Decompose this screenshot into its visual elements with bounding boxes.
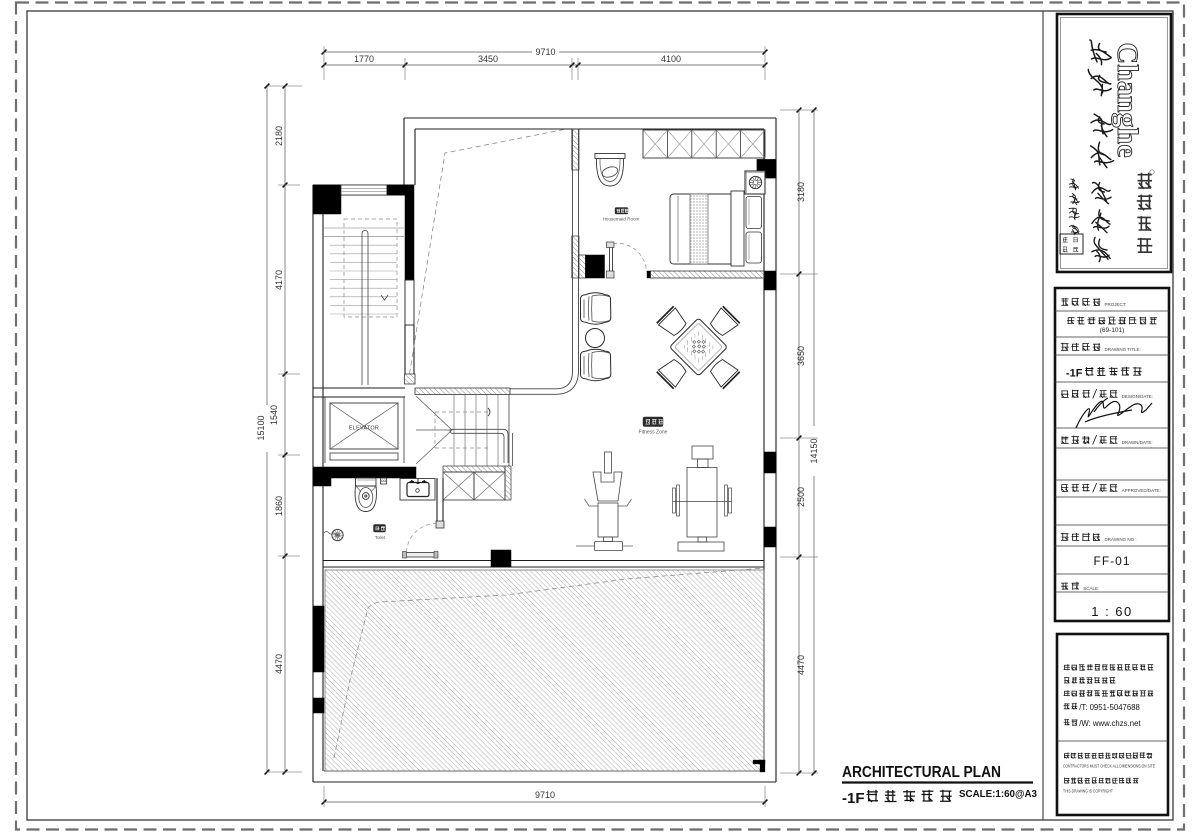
svg-text:/W: www.chzs.net: /W: www.chzs.net xyxy=(1079,719,1141,728)
svg-text:Housemaid Room: Housemaid Room xyxy=(603,217,640,222)
svg-text:PROJECT:: PROJECT: xyxy=(1105,302,1127,307)
svg-text:4470: 4470 xyxy=(274,654,284,674)
svg-text:1540: 1540 xyxy=(269,405,279,425)
svg-text:1860: 1860 xyxy=(274,496,284,516)
svg-text:ARCHITECTURAL PLAN: ARCHITECTURAL PLAN xyxy=(842,764,1001,781)
svg-text:9710: 9710 xyxy=(535,790,555,800)
svg-text:DESIGN/DATE:: DESIGN/DATE: xyxy=(1122,394,1153,399)
svg-text:14150: 14150 xyxy=(809,438,819,463)
svg-text:ELEVATOR: ELEVATOR xyxy=(349,426,379,432)
svg-text:Toilet: Toilet xyxy=(375,535,386,540)
svg-text:1770: 1770 xyxy=(354,54,374,64)
svg-text:/T: 0951-5047688: /T: 0951-5047688 xyxy=(1079,703,1140,712)
svg-text:1 : 60: 1 : 60 xyxy=(1091,604,1133,619)
svg-text:THIS DRAWING IS COPYRIGHT: THIS DRAWING IS COPYRIGHT xyxy=(1063,789,1113,794)
svg-text:-1F: -1F xyxy=(1066,368,1083,380)
svg-text:Changhe: Changhe xyxy=(1111,42,1144,157)
svg-text:4170: 4170 xyxy=(274,270,284,290)
svg-text:DRAWING TITLE:: DRAWING TITLE: xyxy=(1105,347,1141,352)
svg-text:3180: 3180 xyxy=(796,182,806,202)
svg-text:FF-01: FF-01 xyxy=(1093,554,1130,568)
svg-text:APPROVED/DATE:: APPROVED/DATE: xyxy=(1122,488,1161,493)
svg-text:4100: 4100 xyxy=(661,54,681,64)
svg-text:SCALE:1:60@A3: SCALE:1:60@A3 xyxy=(959,788,1037,800)
svg-text:DRAWING NO :: DRAWING NO : xyxy=(1105,537,1137,542)
svg-text:(69-101): (69-101) xyxy=(1100,327,1125,334)
svg-text:DRAWN/DATE:: DRAWN/DATE: xyxy=(1122,440,1153,445)
svg-text:2180: 2180 xyxy=(274,126,284,146)
svg-text:15100: 15100 xyxy=(256,415,266,440)
svg-text:SCALE:: SCALE: xyxy=(1083,586,1099,591)
svg-text:3650: 3650 xyxy=(796,346,806,366)
svg-text:9710: 9710 xyxy=(535,47,555,57)
svg-text:2500: 2500 xyxy=(796,487,806,507)
svg-text:CONTRACTORS MUST CHECK ALL DIM: CONTRACTORS MUST CHECK ALL DIMENSIONS ON… xyxy=(1063,764,1155,769)
svg-text:-1F: -1F xyxy=(842,790,865,807)
svg-text:3450: 3450 xyxy=(478,54,498,64)
svg-text:Fitness Zone: Fitness Zone xyxy=(639,430,668,436)
svg-text:4470: 4470 xyxy=(796,655,806,675)
